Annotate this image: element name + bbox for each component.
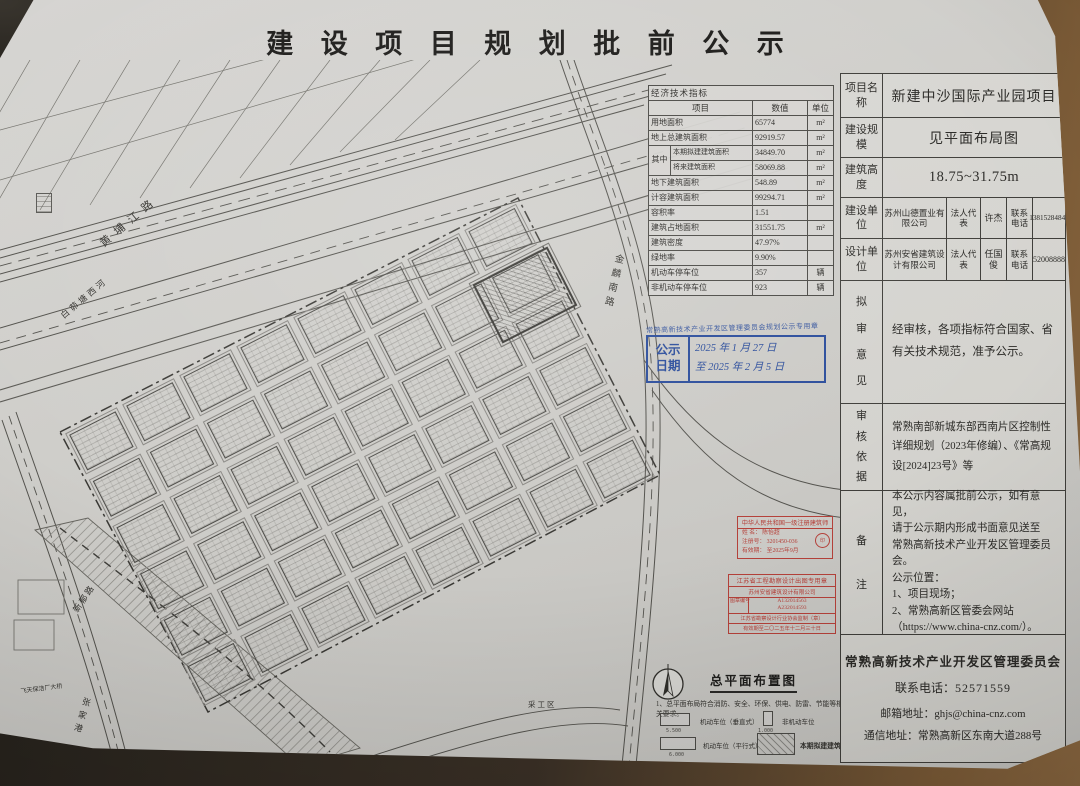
stamp-dates: 2025 年 1 月 27 日 至 2025 年 2 月 5 日 xyxy=(690,337,824,381)
footer-phone-line: 联系电话：52571559 xyxy=(841,679,1065,696)
indicator-unit: m² xyxy=(808,146,834,161)
building-block xyxy=(368,434,432,493)
stamp-date-from: 2025 年 1 月 27 日 xyxy=(695,340,824,359)
remark-text: 本公示内容属批前公示，如有意见， 请于公示期内形成书面意见送至 常熟高新技术产业… xyxy=(883,491,1065,634)
indicator-value: 31551.75 xyxy=(753,221,808,236)
indicator-row: 容积率1.51 xyxy=(649,206,834,221)
footer-email: ghjs@china-cnz.com xyxy=(934,708,1025,720)
indicators-col-item: 项目 xyxy=(649,101,753,116)
architect-reg-label: 注册号： xyxy=(742,539,765,545)
indicator-value: 47.97% xyxy=(753,236,808,251)
indicators-col-value: 数值 xyxy=(753,101,808,116)
indicator-row: 其中本期拟建建筑面积34849.70m² xyxy=(649,146,834,161)
remark-label-wrap: 备注 xyxy=(841,491,883,634)
design-stamp-valid: 有效期至二〇二五年十二月三十日 xyxy=(729,624,835,633)
building-block xyxy=(482,376,546,435)
architect-valid: 至2025年9月 xyxy=(767,548,799,554)
remark-line: （https://www.china-cnz.com/）。 xyxy=(892,620,1056,636)
row-height: 建筑高度 18.75~31.75m xyxy=(841,158,1065,198)
indicator-label: 将来建筑面积 xyxy=(671,161,753,176)
indicators-title: 经济技术指标 xyxy=(649,86,834,101)
building-block xyxy=(173,475,237,534)
indicator-value: 923 xyxy=(753,281,808,296)
design-stamp-company: 苏州安省建筑设计有限公司 xyxy=(729,587,835,598)
architect-reg-no: 3201450-036 xyxy=(767,539,798,545)
footer-email-label: 邮箱地址： xyxy=(880,708,934,720)
indicator-row: 将来建筑面积58069.88m² xyxy=(649,161,834,176)
project-name-label: 项目名称 xyxy=(841,74,883,117)
remark-line: 1、项目现场； xyxy=(892,587,1056,603)
indicator-row: 用地面积65774m² xyxy=(649,116,834,131)
basis-label: 审核依据 xyxy=(855,406,868,487)
label-caigongqu: 采工区 xyxy=(528,699,557,710)
footer-email-line: 邮箱地址：ghjs@china-cnz.com xyxy=(841,705,1065,721)
builder-label: 建设单位 xyxy=(841,198,883,238)
building-block xyxy=(197,521,261,580)
legend-label-parallel: 机动车位（平行式） xyxy=(703,740,762,750)
review-label: 拟审意见 xyxy=(855,289,868,395)
design-stamp-no-values: A132014563 A232014593 xyxy=(749,598,835,613)
building-block xyxy=(278,538,342,597)
indicator-unit xyxy=(808,251,834,266)
building-block xyxy=(449,451,513,510)
design-stamp-no-label: 图章编号 xyxy=(729,598,749,613)
indicator-label: 用地面积 xyxy=(649,116,753,131)
stamp-date-label: 公示 日期 xyxy=(648,337,690,381)
designer-phone-label: 联系电话 xyxy=(1007,239,1033,280)
indicator-label: 建筑密度 xyxy=(649,236,753,251)
north-arrow-icon xyxy=(653,664,683,699)
design-stamp-no1: A132014563 xyxy=(749,598,835,605)
building-block xyxy=(321,341,385,400)
row-review: 拟审意见 经审核，各项指标符合国家、省有关技术规范，准予公示。 xyxy=(841,281,1065,404)
footer-address-label: 通信地址： xyxy=(864,730,918,742)
building-block xyxy=(335,509,399,568)
scale-value: 见平面布局图 xyxy=(883,118,1065,157)
indicator-unit: 辆 xyxy=(808,266,834,281)
legend-swatch-parallel xyxy=(660,737,696,750)
building-block xyxy=(392,480,456,539)
stamp-agency-line: 常熟高新技术产业开发区管理委员会规划公示专用章 xyxy=(646,320,842,335)
builder-legal-label: 法人代表 xyxy=(947,198,981,238)
project-name-value: 新建中沙国际产业园项目 xyxy=(883,74,1065,117)
indicator-unit: m² xyxy=(808,116,834,131)
building-block xyxy=(506,422,570,481)
footer-address: 常熟高新区东南大道288号 xyxy=(918,730,1042,742)
indicators-table: 经济技术指标 项目 数值 单位 用地面积65774m² 地上总建筑面积92919… xyxy=(648,85,834,296)
designer-name: 苏州安省建筑设计有限公司 xyxy=(883,239,947,280)
indicators-col-unit: 单位 xyxy=(808,101,834,116)
design-stamp-issuer: 江苏省勘察设计行业协会监制（章） xyxy=(729,614,835,624)
building-block xyxy=(401,359,465,418)
building-block xyxy=(425,405,489,464)
indicator-label: 地下建筑面积 xyxy=(649,176,753,191)
indicator-unit: m² xyxy=(808,221,834,236)
legend-dim-parallel: 6.000 xyxy=(669,752,684,758)
footer-address-line: 通信地址：常熟高新区东南大道288号 xyxy=(841,727,1065,743)
designer-rep: 任国俊 xyxy=(981,239,1007,280)
footer-phone: 52571559 xyxy=(955,681,1011,695)
scale-label: 建设规模 xyxy=(841,118,883,157)
remark-line: 请于公示期内形成书面意见送至 xyxy=(892,521,1056,537)
row-basis: 审核依据 常熟南部新城东部西南片区控制性详细规划（2023年修编）、《常高规设[… xyxy=(841,404,1065,491)
indicator-value: 1.51 xyxy=(753,206,808,221)
footer-phone-label: 联系电话： xyxy=(895,681,955,695)
review-text: 经审核，各项指标符合国家、省有关技术规范，准予公示。 xyxy=(883,281,1065,403)
indicator-value: 58069.88 xyxy=(753,161,808,176)
building-block xyxy=(150,429,214,488)
indicator-value: 9.90% xyxy=(753,251,808,266)
building-block xyxy=(378,312,442,371)
architect-seal-icon: 印 xyxy=(815,533,830,548)
builder-rep: 许杰 xyxy=(981,198,1007,238)
label-shuinidi: 水泥地 xyxy=(30,743,50,753)
building-block xyxy=(344,388,408,447)
map-detail-box xyxy=(36,193,52,213)
publicity-date-stamp: 常熟高新技术产业开发区管理委员会规划公示专用章 公示 日期 2025 年 1 月… xyxy=(646,323,842,383)
indicator-unit xyxy=(808,206,834,221)
indicator-value: 34849.70 xyxy=(753,146,808,161)
indicator-label: 地上总建筑面积 xyxy=(649,131,753,146)
indicator-label: 本期拟建建筑面积 xyxy=(671,146,753,161)
row-remark: 备注 本公示内容属批前公示，如有意见， 请于公示期内形成书面意见送至 常熟高新技… xyxy=(841,491,1065,635)
remark-label: 备注 xyxy=(855,519,868,607)
building-block xyxy=(207,399,271,458)
indicator-value: 92919.57 xyxy=(753,131,808,146)
indicator-unit xyxy=(808,236,834,251)
builder-name: 苏州山德置业有限公司 xyxy=(883,198,947,238)
row-designer: 设计单位 苏州安省建筑设计有限公司 法人代表 任国俊 联系电话 52008888 xyxy=(841,239,1065,281)
row-builder: 建设单位 苏州山德置业有限公司 法人代表 许杰 联系电话 13815284841 xyxy=(841,198,1065,239)
basis-label-wrap: 审核依据 xyxy=(841,404,883,490)
building-block xyxy=(230,446,294,505)
design-institute-stamp: 江苏省工程勘察设计出图专用章 苏州安省建筑设计有限公司 图章编号 A132014… xyxy=(728,574,836,634)
road-huangpujiang xyxy=(0,65,672,282)
remark-line: 公示位置： xyxy=(892,571,1056,587)
design-stamp-no2: A232014593 xyxy=(749,605,835,612)
notice-paper: 建 设 项 目 规 划 批 前 公 示 xyxy=(0,0,1080,786)
building-block xyxy=(254,492,318,551)
photo-background: 建 设 项 目 规 划 批 前 公 示 xyxy=(0,0,1080,786)
legend-label-planned: 本期拟建建筑 xyxy=(800,740,841,750)
stamp-date-box: 公示 日期 2025 年 1 月 27 日 至 2025 年 2 月 5 日 xyxy=(646,335,826,383)
indicator-label: 非机动车停车位 xyxy=(649,281,753,296)
indicator-label: 绿地率 xyxy=(649,251,753,266)
legend-label-nonmotor: 非机动车位 xyxy=(782,716,815,726)
indicator-value: 65774 xyxy=(753,116,808,131)
indicator-label: 机动车停车位 xyxy=(649,266,753,281)
indicator-row: 机动车停车位357辆 xyxy=(649,266,834,281)
indicator-merge-label: 其中 xyxy=(649,146,671,176)
building-block xyxy=(459,330,523,389)
architect-valid-line: 有效期： 至2025年9月 xyxy=(738,547,832,556)
building-block xyxy=(264,370,328,429)
indicator-value: 357 xyxy=(753,266,808,281)
height-value: 18.75~31.75m xyxy=(883,158,1065,197)
indicator-label: 计容建筑面积 xyxy=(649,191,753,206)
stamp-date-to: 至 2025 年 2 月 5 日 xyxy=(695,359,824,378)
indicator-row: 地下建筑面积548.89m² xyxy=(649,176,834,191)
designer-legal-label: 法人代表 xyxy=(947,239,981,280)
architect-valid-label: 有效期： xyxy=(742,548,765,554)
indicator-row: 建筑占地面积31551.75m² xyxy=(649,221,834,236)
indicator-label: 容积率 xyxy=(649,206,753,221)
indicator-unit: m² xyxy=(808,131,834,146)
architect-stamp-title: 中华人民共和国一级注册建筑师 xyxy=(738,518,832,529)
panel-footer: 常熟高新技术产业开发区管理委员会 联系电话：52571559 邮箱地址：ghjs… xyxy=(841,635,1065,764)
building-block xyxy=(221,568,285,627)
indicator-row: 建筑密度47.97% xyxy=(649,236,834,251)
remark-line: 2、常熟高新区管委会网站 xyxy=(892,604,1056,620)
indicator-row: 地上总建筑面积92919.57m² xyxy=(649,131,834,146)
indicator-row: 绿地率9.90% xyxy=(649,251,834,266)
stamp-date-label-bottom: 日期 xyxy=(655,359,680,375)
architect-stamp: 中华人民共和国一级注册建筑师 姓 名： 陈怡超 注册号： 3201450-036… xyxy=(737,516,833,559)
designer-label: 设计单位 xyxy=(841,239,883,280)
indicator-unit: m² xyxy=(808,176,834,191)
row-scale: 建设规模 见平面布局图 xyxy=(841,118,1065,158)
indicator-row: 非机动车停车位923辆 xyxy=(649,281,834,296)
indicator-unit: m² xyxy=(808,161,834,176)
indicator-value: 99294.71 xyxy=(753,191,808,206)
design-stamp-numbers: 图章编号 A132014563 A232014593 xyxy=(729,598,835,614)
legend-swatch-planned xyxy=(757,733,795,755)
designer-phone: 52008888 xyxy=(1033,239,1065,280)
plan-title: 总平面布置图 xyxy=(710,670,797,693)
indicator-unit: m² xyxy=(808,191,834,206)
legend-swatch-nonmotor xyxy=(763,711,773,726)
builder-phone: 13815284841 xyxy=(1033,198,1065,238)
legend-swatch-vertical xyxy=(660,713,690,726)
indicator-unit: 辆 xyxy=(808,281,834,296)
building-block xyxy=(311,463,375,522)
stamp-date-label-top: 公示 xyxy=(655,343,680,359)
indicator-value: 548.89 xyxy=(753,176,808,191)
info-panel: 项目名称 新建中沙国际产业园项目 建设规模 见平面布局图 建筑高度 18.75~… xyxy=(840,73,1066,763)
building-block xyxy=(287,417,351,476)
page-title: 建 设 项 目 规 划 批 前 公 示 xyxy=(150,22,910,61)
review-label-wrap: 拟审意见 xyxy=(841,281,883,403)
remark-line: 本公示内容属批前公示，如有意见， xyxy=(892,489,1056,522)
legend-dim-vertical: 5.500 xyxy=(666,728,681,734)
legend-label-vertical: 机动车位（垂直式） xyxy=(700,716,759,726)
basis-text: 常熟南部新城东部西南片区控制性详细规划（2023年修编）、《常高规设[2024]… xyxy=(883,404,1065,490)
remark-line: 常熟高新技术产业开发区管理委员会。 xyxy=(892,538,1056,571)
footer-org: 常熟高新技术产业开发区管理委员会 xyxy=(841,651,1065,670)
indicator-row: 计容建筑面积99294.71m² xyxy=(649,191,834,206)
row-project-name: 项目名称 新建中沙国际产业园项目 xyxy=(841,74,1065,118)
height-label: 建筑高度 xyxy=(841,158,883,197)
design-stamp-title: 江苏省工程勘察设计出图专用章 xyxy=(729,575,835,587)
indicator-label: 建筑占地面积 xyxy=(649,221,753,236)
architect-name: 陈怡超 xyxy=(762,530,779,536)
architect-name-label: 姓 名： xyxy=(742,530,761,536)
